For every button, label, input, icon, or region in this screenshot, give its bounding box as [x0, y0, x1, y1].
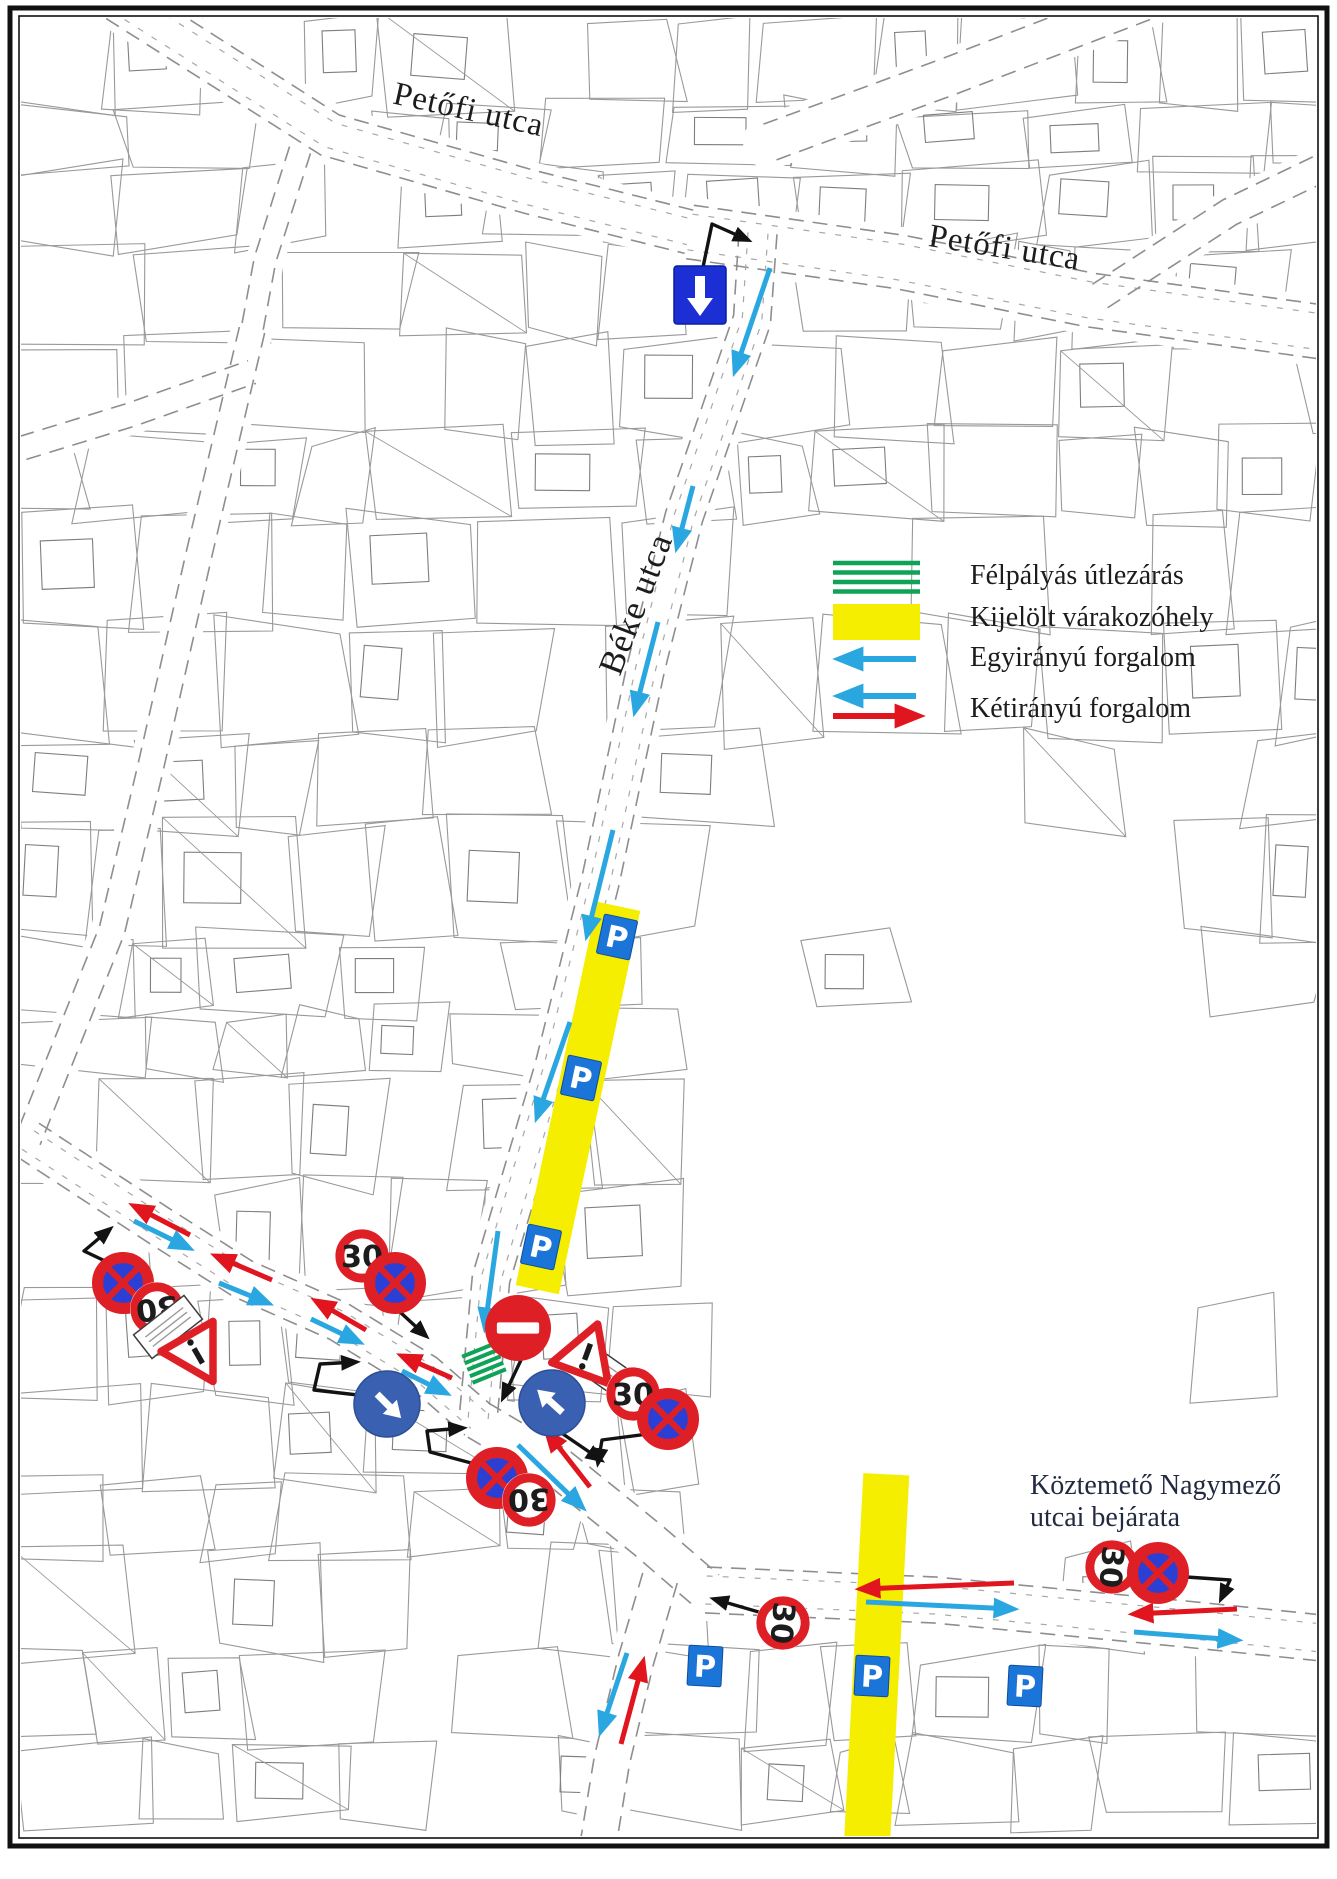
svg-text:30: 30: [507, 1480, 550, 1516]
no-entry-sign: [485, 1295, 551, 1361]
no-stopping-sign: [370, 1258, 421, 1309]
parking-sign: P: [854, 1655, 890, 1697]
no-stopping-sign: [643, 1394, 694, 1445]
mandatory-direction-sign: [354, 1371, 420, 1437]
parking-sign: P: [1007, 1665, 1043, 1707]
svg-text:P: P: [1013, 1669, 1037, 1705]
svg-text:P: P: [693, 1649, 717, 1685]
svg-text:30: 30: [1091, 1544, 1130, 1589]
svg-text:P: P: [860, 1659, 884, 1695]
no-stopping-sign: [1133, 1548, 1184, 1599]
map-canvas: PPPPPP303030303030: [0, 0, 1337, 1879]
legend-yellow-swatch: [833, 604, 920, 640]
one-way-down-sign: [674, 266, 726, 324]
svg-text:30: 30: [762, 1600, 801, 1645]
parking-sign: P: [687, 1645, 723, 1687]
mandatory-direction-sign: [519, 1370, 585, 1436]
legend-swatches: [833, 563, 920, 716]
traffic-plan-map: PPPPPP303030303030 Petőfi utca Petőfi ut…: [0, 0, 1337, 1879]
